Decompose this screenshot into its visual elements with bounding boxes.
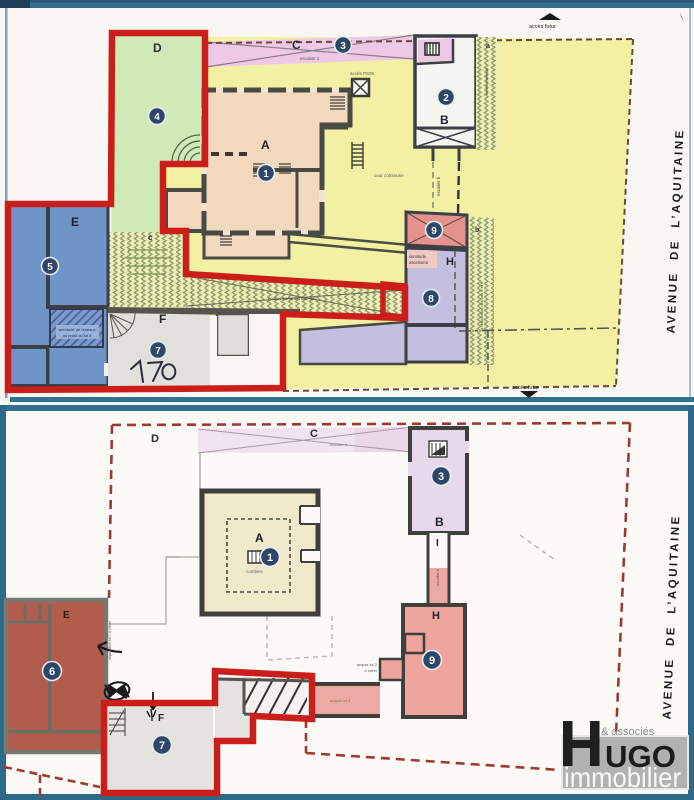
svg-text:a: a bbox=[486, 43, 490, 50]
svg-text:accès PS05: accès PS05 bbox=[350, 71, 375, 76]
svg-text:1: 1 bbox=[267, 552, 273, 564]
svg-text:C: C bbox=[292, 38, 301, 52]
svg-text:acquis lot 4: acquis lot 4 bbox=[330, 698, 351, 703]
svg-text:escalier 1: escalier 1 bbox=[300, 56, 320, 61]
svg-text:servitude de réseaux: servitude de réseaux bbox=[58, 327, 95, 332]
svg-text:H: H bbox=[432, 610, 440, 622]
svg-text:7: 7 bbox=[155, 346, 161, 357]
svg-text:à créer: à créer bbox=[365, 668, 378, 673]
svg-text:couloir commun aux lots: couloir commun aux lots bbox=[268, 296, 317, 301]
svg-text:acquis lot 2: acquis lot 2 bbox=[357, 662, 378, 667]
svg-text:D: D bbox=[151, 433, 159, 445]
svg-text:H: H bbox=[446, 256, 454, 268]
svg-text:c: c bbox=[148, 233, 153, 242]
svg-text:immobilier: immobilier bbox=[564, 762, 681, 793]
svg-text:7: 7 bbox=[159, 740, 165, 752]
svg-text:F: F bbox=[158, 713, 164, 724]
svg-text:9: 9 bbox=[431, 226, 437, 237]
svg-text:escalier b: escalier b bbox=[436, 176, 441, 196]
svg-text:8: 8 bbox=[428, 294, 434, 305]
svg-text:servitude: servitude bbox=[409, 254, 427, 259]
svg-text:A: A bbox=[261, 138, 270, 152]
svg-text:cour commune: cour commune bbox=[374, 173, 404, 178]
svg-text:séparation lot 1 à créer: séparation lot 1 à créer bbox=[108, 620, 112, 660]
svg-text:ascenseur: ascenseur bbox=[409, 260, 429, 265]
svg-text:B: B bbox=[440, 113, 449, 127]
svg-text:E: E bbox=[71, 215, 79, 229]
svg-text:& associés: & associés bbox=[601, 726, 655, 738]
svg-text:6: 6 bbox=[49, 666, 55, 678]
svg-text:I: I bbox=[436, 538, 439, 549]
svg-text:B: B bbox=[435, 515, 444, 529]
svg-text:C: C bbox=[310, 428, 318, 440]
svg-text:A: A bbox=[255, 531, 264, 545]
svg-text:9: 9 bbox=[429, 655, 435, 667]
svg-text:3: 3 bbox=[340, 41, 346, 52]
svg-text:escalier b: escalier b bbox=[435, 568, 440, 586]
svg-text:accès futur: accès futur bbox=[529, 24, 556, 30]
svg-text:escalier 1: escalier 1 bbox=[330, 442, 348, 447]
svg-text:5: 5 bbox=[47, 262, 53, 273]
svg-text:3: 3 bbox=[438, 471, 444, 483]
svg-text:à disposition des lots 8 et 9: à disposition des lots 8 et 9 bbox=[479, 281, 484, 330]
svg-text:4: 4 bbox=[154, 112, 160, 123]
svg-text:accès futur: accès futur bbox=[512, 385, 539, 391]
svg-text:2: 2 bbox=[443, 93, 449, 104]
svg-text:D: D bbox=[153, 41, 162, 55]
svg-text:E: E bbox=[63, 610, 70, 621]
svg-text:1: 1 bbox=[263, 169, 269, 180]
svg-text:combles: combles bbox=[246, 569, 264, 574]
svg-text:F: F bbox=[159, 312, 166, 326]
svg-text:accès commun: accès commun bbox=[484, 68, 489, 95]
svg-text:au profit du lot 3: au profit du lot 3 bbox=[63, 333, 92, 338]
svg-text:b: b bbox=[475, 227, 479, 234]
